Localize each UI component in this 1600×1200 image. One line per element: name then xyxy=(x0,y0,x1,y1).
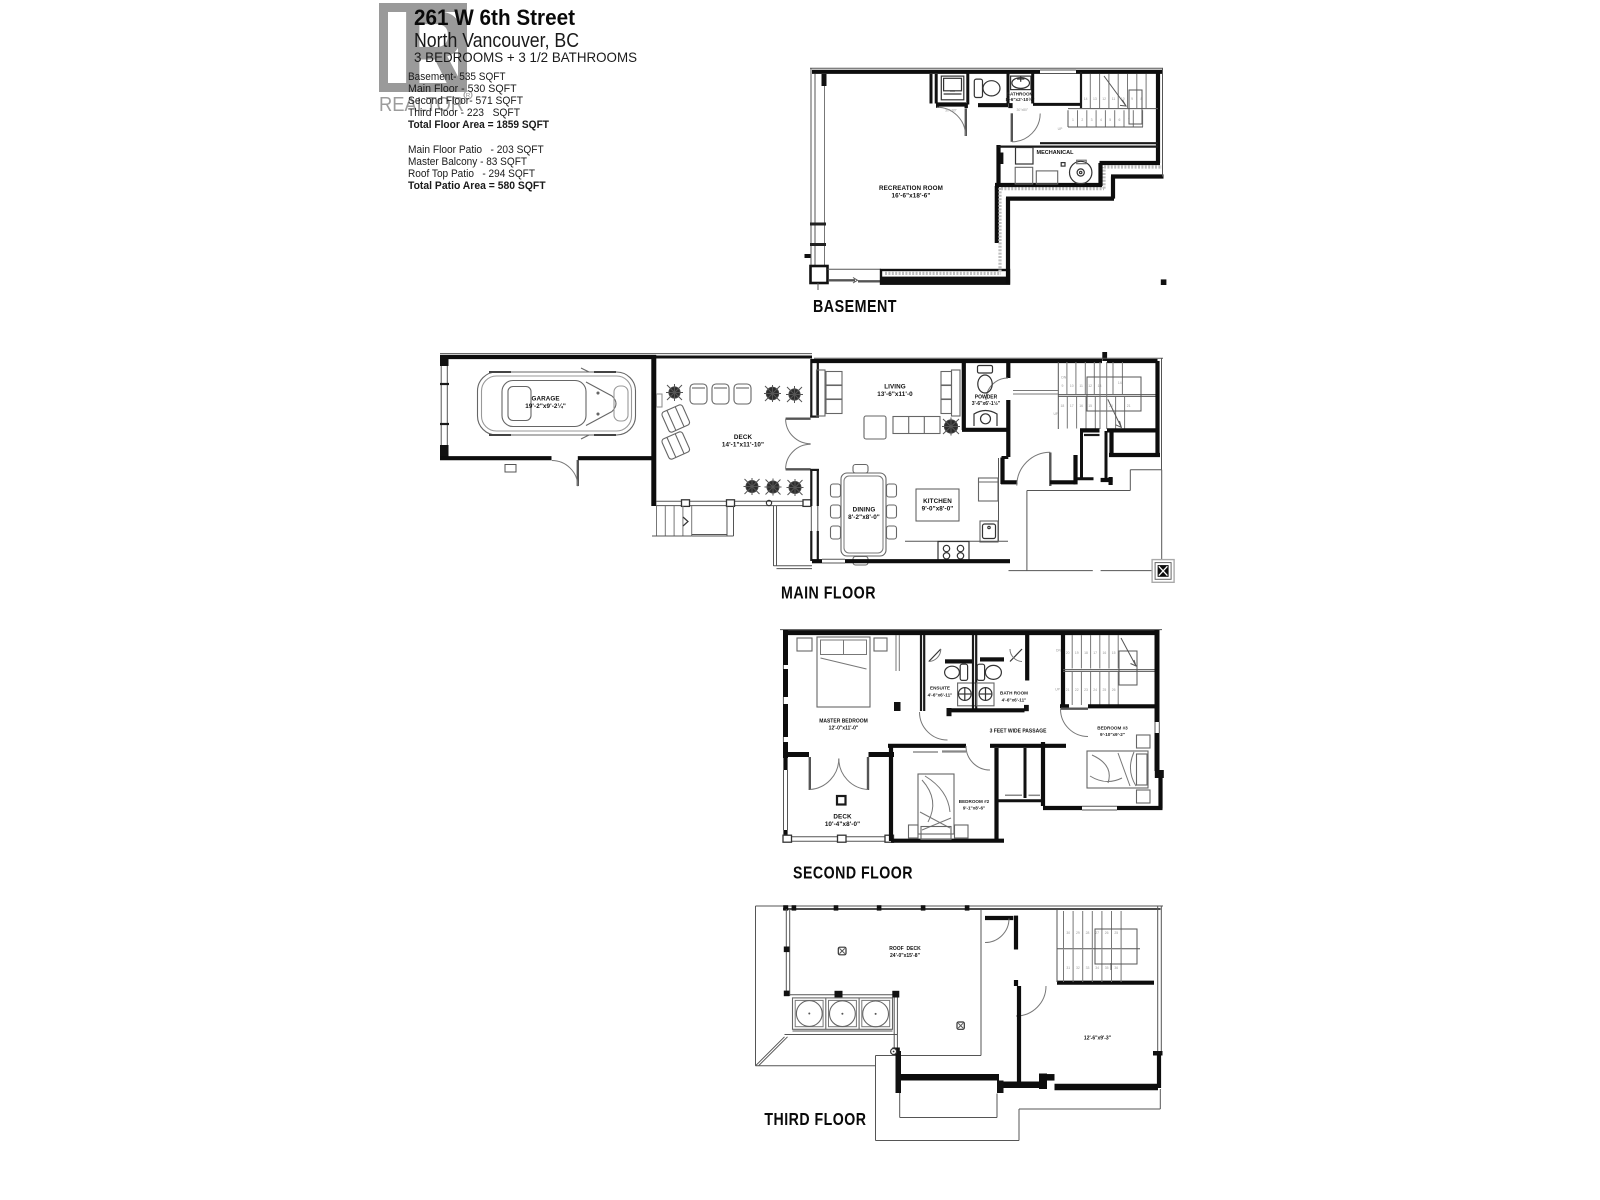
svg-text:26: 26 xyxy=(1105,931,1109,935)
svg-text:THIRD FLOOR: THIRD FLOOR xyxy=(764,1109,866,1129)
svg-text:13: 13 xyxy=(1093,97,1097,101)
svg-text:261 W 6th Street: 261 W 6th Street xyxy=(414,5,575,30)
svg-text:DECK: DECK xyxy=(734,434,753,441)
svg-text:ROOF DECK: ROOF DECK xyxy=(889,946,921,952)
svg-text:Basement- 535 SQFT: Basement- 535 SQFT xyxy=(408,71,506,83)
svg-text:22: 22 xyxy=(1075,688,1079,692)
svg-text:31: 31 xyxy=(1066,966,1070,970)
svg-text:12'-0"x11'-0": 12'-0"x11'-0" xyxy=(829,726,859,732)
svg-text:29: 29 xyxy=(1076,931,1080,935)
svg-text:25: 25 xyxy=(1114,931,1118,935)
svg-text:16: 16 xyxy=(1079,404,1083,408)
svg-text:10: 10 xyxy=(1070,384,1074,388)
svg-text:SECOND FLOOR: SECOND FLOOR xyxy=(793,863,913,883)
svg-text:4'-6"x6'-11": 4'-6"x6'-11" xyxy=(1002,698,1027,703)
svg-text:Main Floor - 530 SQFT: Main Floor - 530 SQFT xyxy=(408,83,517,95)
svg-text:2: 2 xyxy=(1081,118,1083,122)
svg-text:3 FEET WIDE PASSAGE: 3 FEET WIDE PASSAGE xyxy=(990,729,1048,735)
svg-text:3'-6"x6'-1½": 3'-6"x6'-1½" xyxy=(972,400,1001,407)
svg-text:MAIN FLOOR: MAIN FLOOR xyxy=(781,583,876,603)
svg-text:8'-6"x2'-10½": 8'-6"x2'-10½" xyxy=(1006,96,1035,102)
svg-text:34: 34 xyxy=(1095,966,1099,970)
svg-text:9'-1"x8'-6": 9'-1"x8'-6" xyxy=(963,806,985,811)
svg-text:BEDROOM #2: BEDROOM #2 xyxy=(959,799,990,804)
svg-text:26: 26 xyxy=(1112,688,1116,692)
svg-text:DN: DN xyxy=(1061,376,1066,380)
svg-text:24: 24 xyxy=(1093,688,1097,692)
svg-text:30: 30 xyxy=(1066,931,1070,935)
svg-text:11: 11 xyxy=(1112,97,1116,101)
svg-text:17: 17 xyxy=(1093,651,1097,655)
svg-text:Roof Top Patio - 294 SQFT: Roof Top Patio - 294 SQFT xyxy=(408,168,535,180)
svg-text:18: 18 xyxy=(1061,404,1065,408)
svg-text:13'-6"x11'-0: 13'-6"x11'-0 xyxy=(877,391,913,398)
svg-text:UP: UP xyxy=(1055,688,1060,692)
svg-text:21: 21 xyxy=(1127,404,1131,408)
svg-text:25: 25 xyxy=(1103,688,1107,692)
svg-text:1: 1 xyxy=(1072,118,1074,122)
svg-text:9: 9 xyxy=(1061,384,1063,388)
svg-text:6: 6 xyxy=(1119,118,1121,122)
svg-text:30"x80": 30"x80" xyxy=(1016,108,1028,112)
svg-text:23: 23 xyxy=(1084,688,1088,692)
svg-text:MASTER BEDROOM: MASTER BEDROOM xyxy=(819,719,868,725)
svg-text:10'-4"x8'-0": 10'-4"x8'-0" xyxy=(825,821,860,828)
svg-text:DECK: DECK xyxy=(833,814,852,821)
svg-text:16: 16 xyxy=(1103,651,1107,655)
svg-text:12'-6"x9'-3": 12'-6"x9'-3" xyxy=(1084,1036,1112,1042)
svg-text:RECREATION ROOM: RECREATION ROOM xyxy=(879,185,943,192)
svg-text:15: 15 xyxy=(1112,651,1116,655)
svg-text:20: 20 xyxy=(1066,651,1070,655)
svg-text:17: 17 xyxy=(1070,404,1074,408)
svg-text:Main Floor Patio - 203 SQFT: Main Floor Patio - 203 SQFT xyxy=(408,144,544,156)
svg-text:3 BEDROOMS + 3 1/2 BATHROOMS: 3 BEDROOMS + 3 1/2 BATHROOMS xyxy=(414,50,637,65)
svg-text:14: 14 xyxy=(1118,381,1122,385)
svg-text:LIVING: LIVING xyxy=(884,384,906,391)
svg-text:21: 21 xyxy=(1066,688,1070,692)
svg-text:33: 33 xyxy=(1086,966,1090,970)
svg-text:30"x80": 30"x80" xyxy=(945,109,957,113)
svg-text:Total Floor Area = 1859 SQFT: Total Floor Area = 1859 SQFT xyxy=(408,119,549,131)
svg-text:5: 5 xyxy=(1109,118,1111,122)
svg-text:Master Balcony - 83 SQFT: Master Balcony - 83 SQFT xyxy=(408,156,527,168)
svg-text:North Vancouver, BC: North Vancouver, BC xyxy=(414,30,579,52)
svg-text:14: 14 xyxy=(1084,97,1088,101)
svg-text:9'-10"x9'-2": 9'-10"x9'-2" xyxy=(1100,732,1125,737)
svg-text:KITCHEN: KITCHEN xyxy=(923,498,952,505)
svg-text:BATH ROOM: BATH ROOM xyxy=(1000,691,1028,696)
svg-text:35: 35 xyxy=(1105,966,1109,970)
svg-text:BEDROOM #3: BEDROOM #3 xyxy=(1097,726,1128,731)
svg-text:POWDER: POWDER xyxy=(975,394,998,400)
svg-text:BATHROOM: BATHROOM xyxy=(1007,91,1034,96)
svg-text:9'-0"x8'-0": 9'-0"x8'-0" xyxy=(922,506,954,513)
svg-text:14'-1"x11'-10": 14'-1"x11'-10" xyxy=(722,442,764,449)
svg-text:16'-6"x18'-6": 16'-6"x18'-6" xyxy=(892,193,931,200)
svg-text:12: 12 xyxy=(1102,97,1106,101)
svg-text:24'-0"x15'-8": 24'-0"x15'-8" xyxy=(890,953,921,959)
svg-text:8'-2"x8'-0": 8'-2"x8'-0" xyxy=(848,514,880,521)
svg-text:36: 36 xyxy=(1114,966,1118,970)
svg-text:GARAGE: GARAGE xyxy=(531,396,559,403)
svg-text:32: 32 xyxy=(1076,966,1080,970)
svg-text:4: 4 xyxy=(1100,118,1102,122)
svg-text:MECHANICAL: MECHANICAL xyxy=(1037,150,1074,156)
svg-text:4'-6"x6'-11": 4'-6"x6'-11" xyxy=(928,693,953,698)
svg-text:28: 28 xyxy=(1086,931,1090,935)
svg-text:27: 27 xyxy=(1095,931,1099,935)
svg-text:UP: UP xyxy=(1058,127,1063,131)
svg-text:3: 3 xyxy=(1091,118,1093,122)
svg-text:Total Patio Area = 580 SQFT: Total Patio Area = 580 SQFT xyxy=(408,180,546,192)
svg-text:DINING: DINING xyxy=(853,507,876,514)
svg-text:11: 11 xyxy=(1079,384,1083,388)
svg-text:Second Floor- 571 SQFT: Second Floor- 571 SQFT xyxy=(408,95,523,107)
svg-text:18: 18 xyxy=(1084,651,1088,655)
svg-text:19: 19 xyxy=(1075,651,1079,655)
svg-text:Third Floor - 223 SQFT: Third Floor - 223 SQFT xyxy=(408,107,520,119)
svg-text:ENSUITE: ENSUITE xyxy=(930,686,950,691)
svg-text:DN: DN xyxy=(1056,649,1061,653)
svg-text:19'-2"x9'-2¼": 19'-2"x9'-2¼" xyxy=(525,402,566,410)
svg-text:12: 12 xyxy=(1088,384,1092,388)
svg-text:UP: UP xyxy=(1053,412,1058,416)
svg-text:BASEMENT: BASEMENT xyxy=(813,296,897,316)
svg-text:9: 9 xyxy=(1131,97,1133,101)
svg-text:15: 15 xyxy=(1088,404,1092,408)
